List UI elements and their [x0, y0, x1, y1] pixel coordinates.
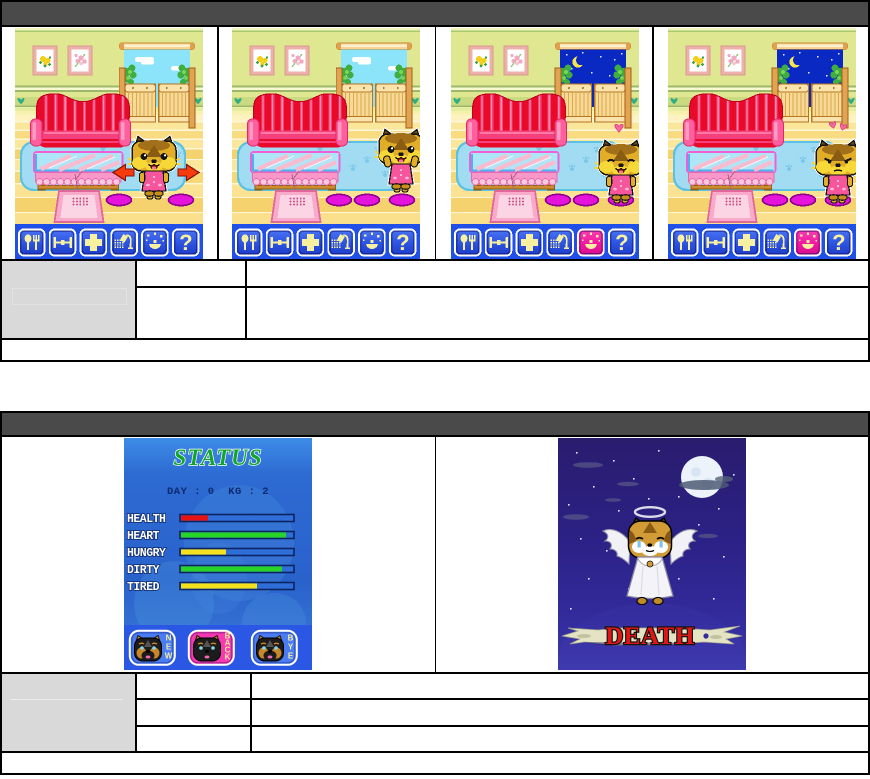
svg-text:B: B	[288, 634, 294, 643]
svg-text:DAY : 0 KG : 2: DAY : 0 KG : 2	[167, 486, 269, 498]
svg-text:HEALTH: HEALTH	[127, 513, 166, 526]
svg-text:TIRED: TIRED	[127, 581, 160, 594]
svg-text:?: ?	[179, 230, 192, 255]
svg-text:W: W	[165, 652, 173, 661]
svg-text:DEATH: DEATH	[605, 623, 695, 650]
svg-text:?: ?	[396, 230, 409, 255]
svg-text:?: ?	[615, 230, 628, 255]
svg-text:Y: Y	[288, 643, 294, 652]
svg-text:STATUS: STATUS	[173, 445, 262, 470]
svg-text:HEART: HEART	[127, 530, 160, 543]
svg-text:E: E	[288, 652, 294, 661]
svg-text:N: N	[166, 634, 172, 643]
svg-text:?: ?	[832, 230, 845, 255]
svg-text:E: E	[166, 643, 172, 652]
svg-text:K: K	[225, 653, 231, 662]
svg-text:DIRTY: DIRTY	[127, 564, 160, 577]
svg-text:HUNGRY: HUNGRY	[127, 547, 166, 560]
